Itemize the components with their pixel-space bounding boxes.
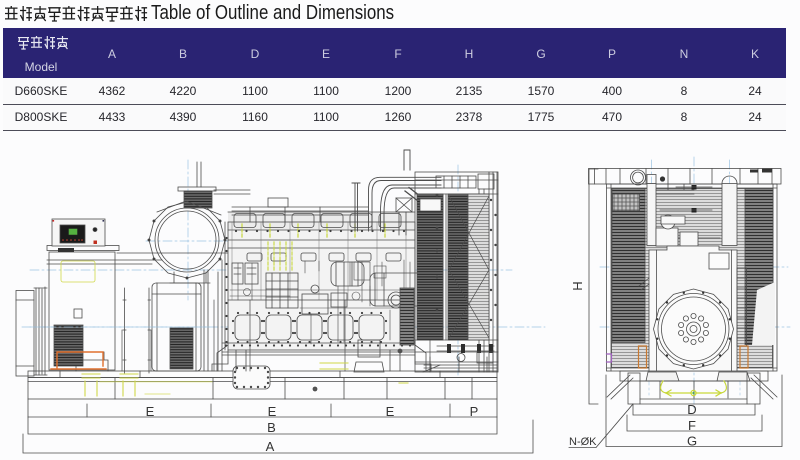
svg-text:E: E xyxy=(146,404,155,419)
svg-text:P: P xyxy=(470,404,479,419)
svg-text:E: E xyxy=(386,404,395,419)
svg-text:G: G xyxy=(687,434,697,449)
svg-text:A: A xyxy=(266,439,275,454)
svg-text:B: B xyxy=(267,420,276,435)
svg-text:N-ØK: N-ØK xyxy=(569,436,597,448)
svg-text:H: H xyxy=(570,281,585,290)
svg-text:D: D xyxy=(687,402,696,417)
svg-text:F: F xyxy=(688,418,696,433)
svg-text:E: E xyxy=(268,404,277,419)
